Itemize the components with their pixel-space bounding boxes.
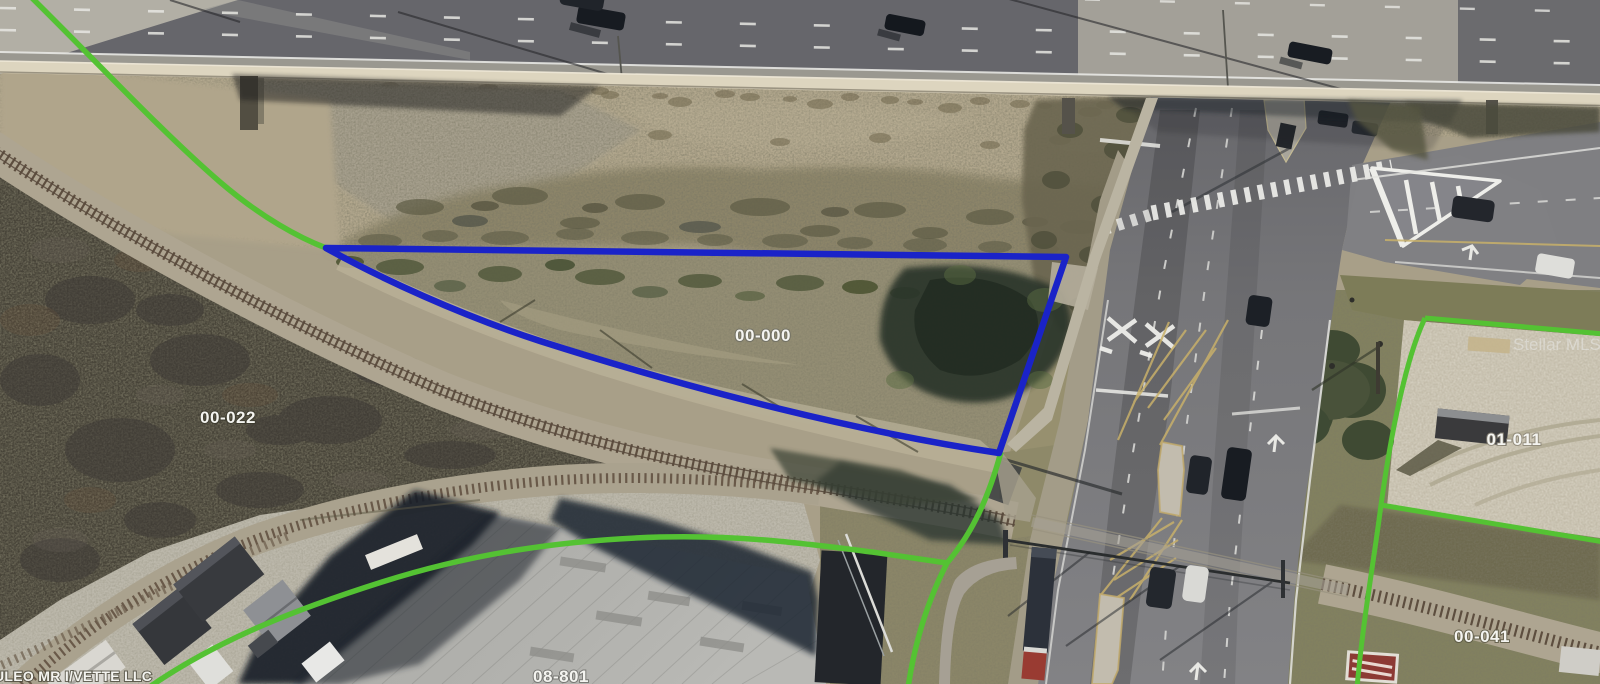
svg-text:Stellar MLS: Stellar MLS: [1513, 335, 1600, 354]
svg-text:00-041: 00-041: [1454, 627, 1510, 646]
svg-text:00-022: 00-022: [200, 408, 256, 427]
svg-text:00-000: 00-000: [735, 326, 791, 345]
svg-text:01-011: 01-011: [1487, 430, 1542, 449]
svg-text:ULEO MR I/VETTE LLC: ULEO MR I/VETTE LLC: [0, 668, 152, 684]
svg-text:08-801: 08-801: [533, 667, 589, 684]
